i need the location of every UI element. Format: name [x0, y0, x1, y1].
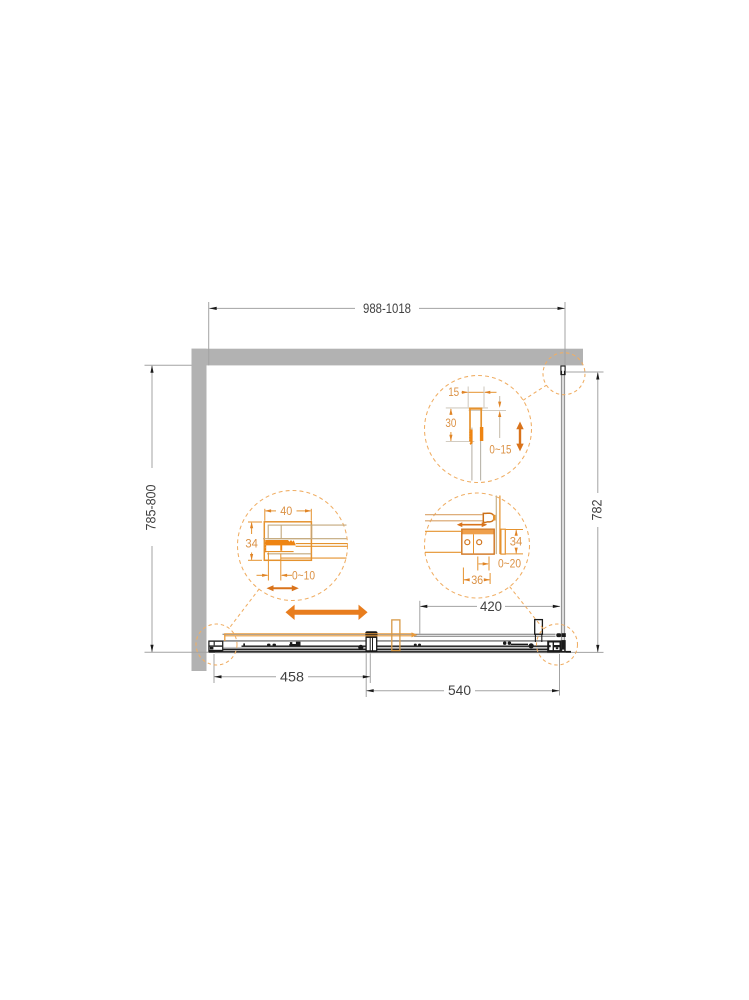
svg-text:36: 36: [471, 573, 483, 587]
svg-text:34: 34: [510, 535, 523, 549]
svg-text:0~15: 0~15: [489, 444, 511, 456]
svg-text:40: 40: [280, 504, 292, 518]
svg-text:785-800: 785-800: [144, 485, 159, 531]
svg-text:15: 15: [448, 387, 459, 399]
svg-text:0~10: 0~10: [292, 568, 315, 582]
svg-text:420: 420: [480, 599, 502, 614]
svg-text:0~20: 0~20: [498, 556, 521, 570]
svg-text:34: 34: [245, 537, 258, 551]
svg-text:458: 458: [280, 669, 304, 684]
svg-text:30: 30: [445, 418, 456, 430]
svg-text:540: 540: [448, 683, 471, 698]
svg-text:782: 782: [590, 500, 605, 521]
svg-text:988-1018: 988-1018: [363, 301, 411, 316]
